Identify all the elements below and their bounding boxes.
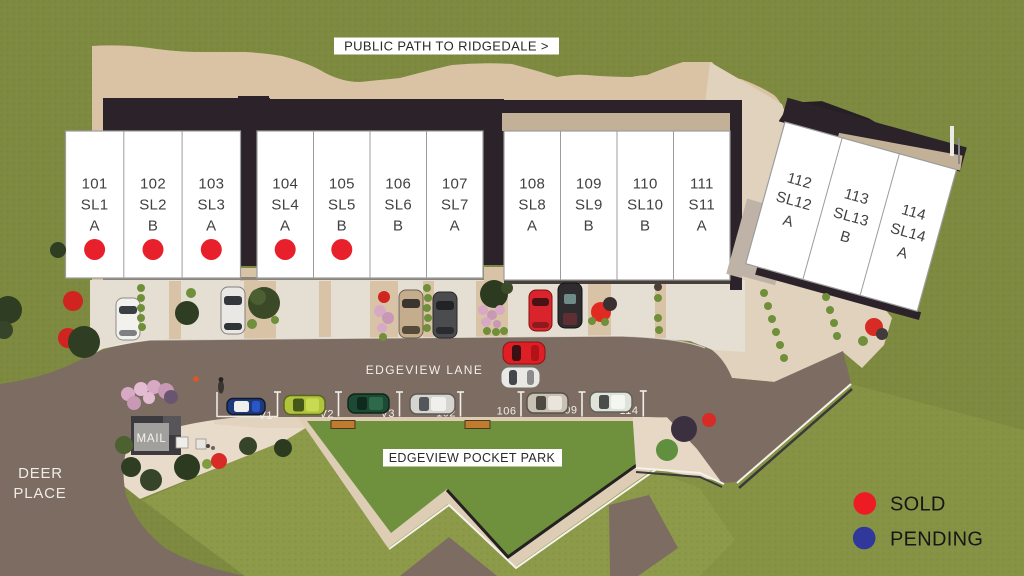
svg-text:PUBLIC PATH TO RIDGEDALE >: PUBLIC PATH TO RIDGEDALE > [344,39,549,54]
svg-text:SL10: SL10 [627,197,663,214]
svg-text:106: 106 [497,406,517,418]
svg-text:A: A [206,218,216,235]
svg-text:107: 107 [442,176,468,193]
svg-text:A: A [450,218,460,235]
svg-text:DEER: DEER [18,465,63,482]
svg-text:104: 104 [272,176,298,193]
svg-text:A: A [697,218,707,235]
svg-text:SL8: SL8 [518,197,546,214]
svg-text:SL7: SL7 [441,197,469,214]
svg-text:102: 102 [140,176,166,193]
svg-text:SL6: SL6 [384,197,412,214]
svg-text:SL2: SL2 [139,197,167,214]
svg-text:SL4: SL4 [271,197,299,214]
svg-text:B: B [584,218,594,235]
svg-text:SL9: SL9 [575,197,603,214]
svg-text:SL5: SL5 [328,197,356,214]
svg-text:EDGEVIEW POCKET PARK: EDGEVIEW POCKET PARK [389,451,556,465]
svg-text:109: 109 [576,176,602,193]
svg-text:B: B [337,218,347,235]
svg-text:B: B [393,218,403,235]
svg-text:106: 106 [385,176,411,193]
svg-text:SL1: SL1 [81,197,109,214]
svg-text:S11: S11 [689,197,715,214]
svg-text:EDGEVIEW LANE: EDGEVIEW LANE [366,363,484,377]
svg-text:B: B [148,218,158,235]
svg-text:PLACE: PLACE [13,485,66,502]
svg-text:MAIL: MAIL [136,433,166,445]
svg-text:A: A [89,218,99,235]
svg-text:B: B [640,218,650,235]
svg-text:SOLD: SOLD [890,494,946,516]
svg-text:101: 101 [82,176,108,193]
svg-text:SL3: SL3 [198,197,226,214]
svg-text:108: 108 [519,176,545,193]
svg-text:A: A [280,218,290,235]
svg-text:A: A [527,218,537,235]
svg-text:103: 103 [198,176,224,193]
svg-text:110: 110 [633,176,658,193]
svg-text:PENDING: PENDING [890,529,983,551]
svg-text:105: 105 [329,176,355,193]
svg-text:111: 111 [690,176,714,193]
